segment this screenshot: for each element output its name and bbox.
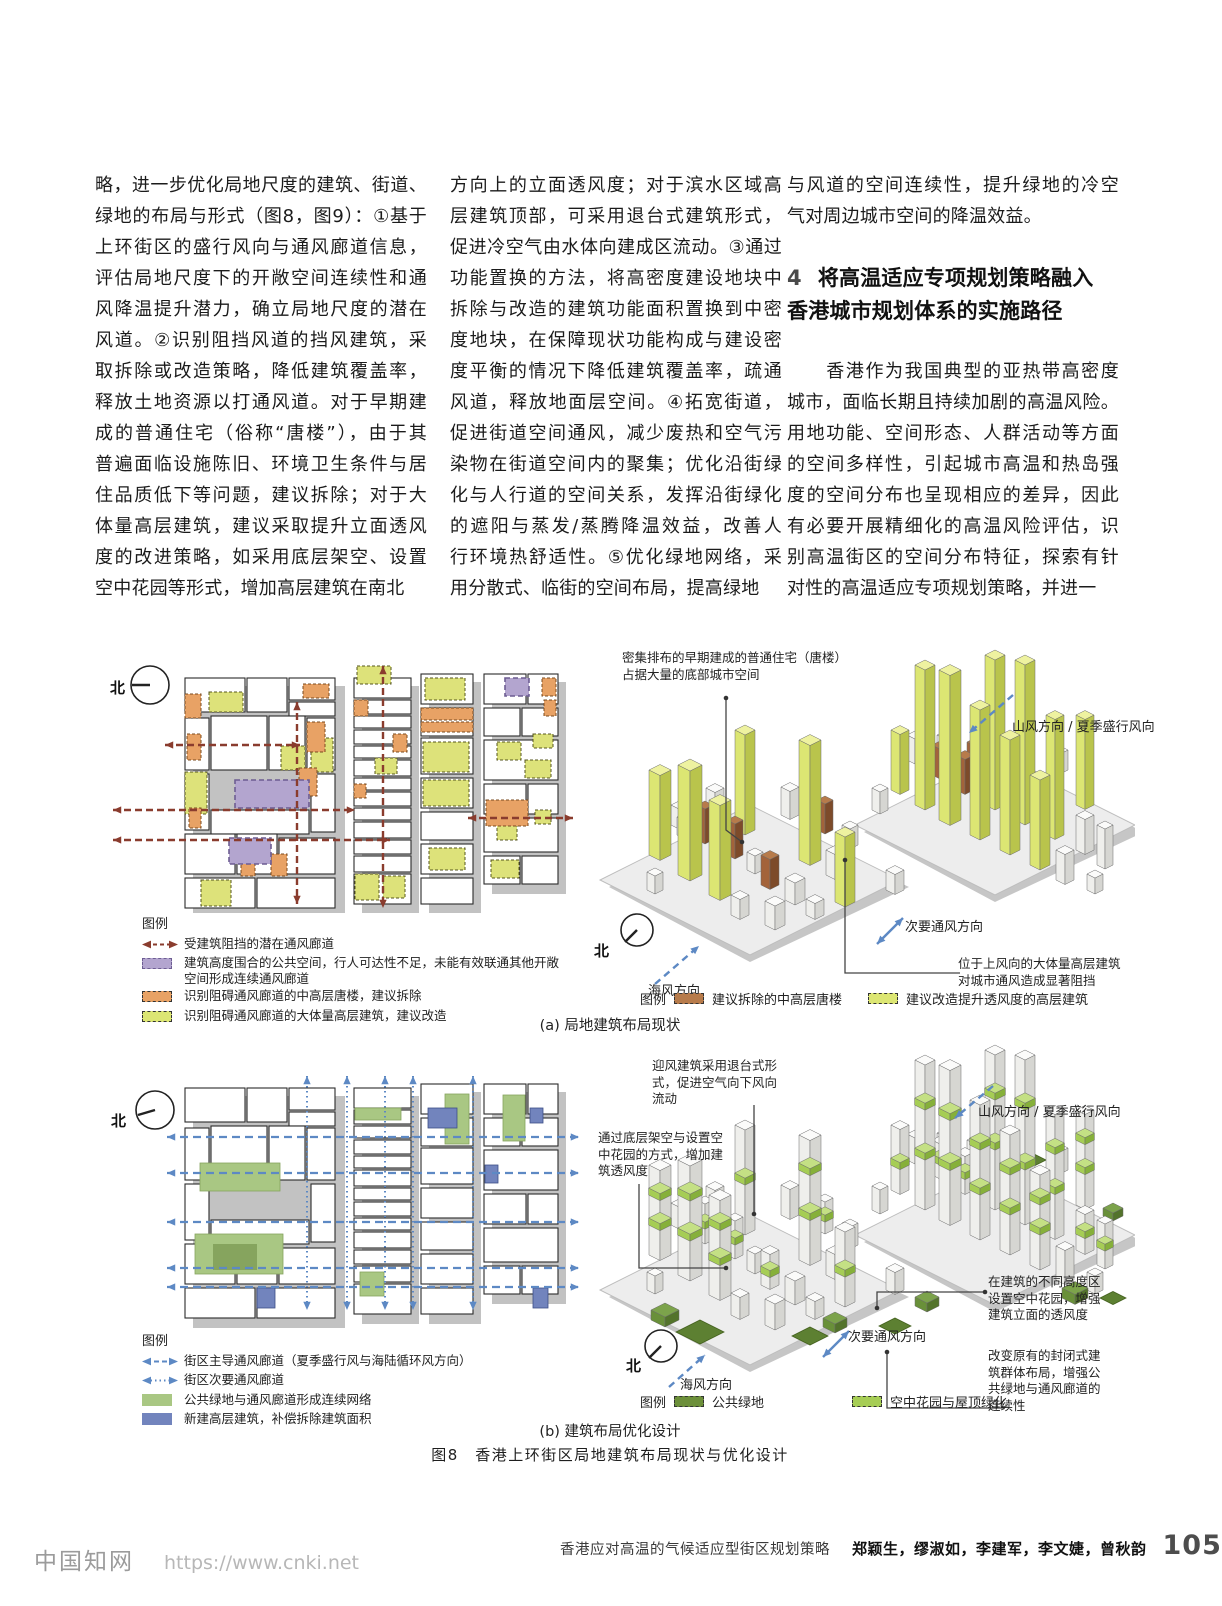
- retrofit-highrise-swatch-icon: [868, 993, 898, 1004]
- legend-label: 街区主导通风廊道（夏季盛行风与海陆循环风方向）: [184, 1353, 472, 1369]
- panel-a-axonometric: [595, 640, 1135, 985]
- text-line: 略，进一步优化局地尺度的建筑、街道、: [95, 170, 427, 201]
- annotation-mountain-wind: 山风方向 / 夏季盛行风向: [978, 1101, 1121, 1120]
- legend-item: 受建筑阻挡的潜在通风廊道: [142, 936, 582, 954]
- text-line: 拆除与改造的建筑功能面积置换到中密: [450, 294, 782, 325]
- text-column-right: 与风道的空间连续性，提升绿地的冷空气对周边城市空间的降温效益。 4将高温适应专项…: [787, 170, 1119, 620]
- text-line: 绿地的布局与形式（图8，图9）：①基于: [95, 201, 427, 232]
- paper-page: 略，进一步优化局地尺度的建筑、街道、绿地的布局与形式（图8，图9）：①基于上环街…: [0, 0, 1222, 1606]
- paragraph: 香港作为我国典型的亚热带高密度城市，面临长期且持续加剧的高温风险。用地功能、空间…: [787, 356, 1119, 604]
- text-line: 的遮阳与蒸发/蒸腾降温效益，改善人: [450, 511, 782, 542]
- north-label: 北: [594, 940, 609, 961]
- text-line: 度地块，在保障现状功能构成与建设密: [450, 325, 782, 356]
- north-label: 北: [110, 677, 125, 698]
- demolish-tanglou-swatch-icon: [674, 993, 704, 1004]
- text-line: 气对周边城市空间的降温效益。: [787, 201, 1119, 232]
- legend-item: 公共绿地与通风廊道形成连续网络: [142, 1392, 582, 1410]
- legend-item: 建筑高度围合的公共空间，行人可达性不足，未能有效联通其他开敞 空间形成连续通风廊…: [142, 955, 582, 986]
- text-line: 对性的高温适应专项规划策略，并进一: [787, 573, 1119, 604]
- text-line: 住品质低下等问题，建议拆除；对于大: [95, 480, 427, 511]
- text-column-left: 略，进一步优化局地尺度的建筑、街道、绿地的布局与形式（图8，图9）：①基于上环街…: [95, 170, 427, 604]
- text-line: 度的空间分布也呈现相应的差异，因此: [787, 480, 1119, 511]
- text-line: 评估局地尺度下的开敞空间连续性和通: [95, 263, 427, 294]
- text-line: 风道，释放地面层空间。④拓宽街道，: [450, 387, 782, 418]
- section-heading-line2: 香港城市规划体系的实施路径: [787, 295, 1119, 328]
- annotation-upwind-block: 位于上风向的大体量高层建筑 对城市通风造成显著阻挡: [958, 956, 1148, 989]
- text-line: 体量高层建筑，建议采取提升立面透风: [95, 511, 427, 542]
- annotation-tanglou: 密集排布的早期建成的普通住宅（唐楼） 占据大量的底部城市空间: [622, 650, 878, 683]
- text-line: 染物在街道空间内的聚集；优化沿街绿: [450, 449, 782, 480]
- legend-label: 建议改造提升透风度的高层建筑: [906, 989, 1088, 1008]
- figure-caption: 图8 香港上环街区局地建筑布局现状与优化设计: [90, 1444, 1130, 1465]
- text-line: 化与人行道的空间关系，发挥沿街绿化: [450, 480, 782, 511]
- paragraph: 与风道的空间连续性，提升绿地的冷空气对周边城市空间的降温效益。: [787, 170, 1119, 232]
- legend-title: 图例: [640, 989, 666, 1008]
- page-footer: 香港应对高温的气候适应型街区规划策略 郑颖生，缪淑如，李建军，李文婕，曾秋韵 1…: [560, 1530, 1222, 1561]
- text-line: 空中花园等形式，增加高层建筑在南北: [95, 573, 427, 604]
- secondary-corridor-arrow-icon: [142, 1372, 184, 1390]
- text-line: 成的普通住宅（俗称“唐楼”），由于其: [95, 418, 427, 449]
- public-green-swatch-icon: [674, 1396, 704, 1407]
- panel-b-caption: (b) 建筑布局优化设计: [90, 1420, 1130, 1441]
- annotation-secondary-wind: 次要通风方向: [848, 1326, 926, 1345]
- text-line: 用分散式、临街的空间布局，提高绿地: [450, 573, 782, 604]
- annotation-sea-wind: 海风方向: [680, 1374, 732, 1393]
- text-line: 方向上的立面透风度；对于滨水区域高: [450, 170, 782, 201]
- legend-item: 街区次要通风廊道: [142, 1372, 582, 1390]
- text-line: 度平衡的情况下降低建筑覆盖率，疏通: [450, 356, 782, 387]
- section-heading: 4将高温适应专项规划策略融入 香港城市规划体系的实施路径: [787, 262, 1119, 328]
- legend-label: 识别阻碍通风廊道的中高层唐楼，建议拆除: [184, 988, 422, 1004]
- legend-title: 图例: [640, 1392, 666, 1411]
- text-line: 别高温街区的空间分布特征，探索有针: [787, 542, 1119, 573]
- annotation-secondary-wind: 次要通风方向: [905, 916, 983, 935]
- text-line: 功能置换的方法，将高密度建设地块中: [450, 263, 782, 294]
- watermark-url: https://www.cnki.net: [164, 1552, 359, 1574]
- legend-title: 图例: [142, 1334, 582, 1350]
- legend-label: 受建筑阻挡的潜在通风廊道: [184, 936, 334, 952]
- text-line: 香港作为我国典型的亚热带高密度: [787, 356, 1119, 387]
- panel-a-axon-legend: 图例 建议拆除的中高层唐楼 建议改造提升透风度的高层建筑: [640, 989, 1088, 1008]
- tanglou-swatch-icon: [142, 988, 184, 1006]
- text-line: 促进街道空间通风，减少废热和空气污: [450, 418, 782, 449]
- text-line: 有必要开展精细化的高温风险评估，识: [787, 511, 1119, 542]
- section-number: 4: [787, 266, 802, 290]
- panel-a-caption: (a) 局地建筑布局现状: [90, 1014, 1130, 1035]
- legend-label: 空中花园与屋顶绿化: [890, 1392, 1007, 1411]
- section-title-part1: 将高温适应专项规划策略融入: [818, 266, 1094, 290]
- text-line: 普遍面临设施陈旧、环境卫生条件与居: [95, 449, 427, 480]
- annotation-setback: 迎风建筑采用退台式形 式，促进空气向下风向 流动: [652, 1058, 812, 1108]
- panel-b-axon-legend: 图例 公共绿地 空中花园与屋顶绿化: [640, 1392, 1007, 1411]
- panel-a-map-legend: 图例 受建筑阻挡的潜在通风廊道 建筑高度围合的公共空间，行人可达性不足，未能有效…: [142, 917, 582, 1025]
- text-line: 的空间多样性，引起城市高温和热岛强: [787, 449, 1119, 480]
- annotation-layout-change: 改变原有的封闭式建 筑群体布局，增强公 共绿地与通风廊道的 连续性: [988, 1348, 1143, 1414]
- panel-b-map-legend: 图例 街区主导通风廊道（夏季盛行风与海陆循环风方向） 街区次要通风廊道 公共绿地…: [142, 1334, 582, 1429]
- text-line: 度的改进策略，如采用底层架空、设置: [95, 542, 427, 573]
- legend-item: 识别阻碍通风廊道的中高层唐楼，建议拆除: [142, 988, 582, 1006]
- text-line: 层建筑顶部，可采用退台式建筑形式，: [450, 201, 782, 232]
- public-space-swatch-icon: [142, 955, 184, 973]
- text-line: 释放土地资源以打通风道。对于早期建: [95, 387, 427, 418]
- legend-label: 建议拆除的中高层唐楼: [712, 989, 842, 1008]
- section-heading-line1: 4将高温适应专项规划策略融入: [787, 262, 1119, 295]
- text-column-middle: 方向上的立面透风度；对于滨水区域高层建筑顶部，可采用退台式建筑形式，促进冷空气由…: [450, 170, 782, 604]
- text-line: 风降温提升潜力，确立局地尺度的潜在: [95, 294, 427, 325]
- north-label: 北: [111, 1110, 126, 1131]
- running-title: 香港应对高温的气候适应型街区规划策略: [560, 1538, 830, 1559]
- cnki-watermark: 中国知网 https://www.cnki.net: [34, 1542, 359, 1576]
- annotation-piloti: 通过底层架空与设置空 中花园的方式，增加建 筑透风度: [598, 1130, 764, 1180]
- text-line: 风道。②识别阻挡风道的挡风建筑，采: [95, 325, 427, 356]
- legend-label: 建筑高度围合的公共空间，行人可达性不足，未能有效联通其他开敞 空间形成连续通风廊…: [184, 955, 559, 986]
- watermark-name: 中国知网: [34, 1542, 134, 1576]
- text-line: 取拆除或改造策略，降低建筑覆盖率，: [95, 356, 427, 387]
- annotation-sky-garden: 在建筑的不同高度区 设置空中花园，增强 建筑立面的透风度: [988, 1274, 1138, 1324]
- green-network-swatch-icon: [142, 1392, 184, 1410]
- blocked-corridor-arrow-icon: [142, 936, 184, 954]
- authors: 郑颖生，缪淑如，李建军，李文婕，曾秋韵: [852, 1538, 1147, 1559]
- text-line: 城市，面临长期且持续加剧的高温风险。: [787, 387, 1119, 418]
- panel-a-plan-map: [105, 638, 585, 913]
- legend-label: 公共绿地与通风廊道形成连续网络: [184, 1392, 372, 1408]
- text-line: 用地功能、空间形态、人群活动等方面: [787, 418, 1119, 449]
- page-number: 105: [1163, 1530, 1222, 1561]
- legend-item: 街区主导通风廊道（夏季盛行风与海陆循环风方向）: [142, 1353, 582, 1371]
- text-line: 行环境热舒适性。⑤优化绿地网络，采: [450, 542, 782, 573]
- main-corridor-arrow-icon: [142, 1353, 184, 1371]
- legend-label: 公共绿地: [712, 1392, 764, 1411]
- legend-label: 街区次要通风廊道: [184, 1372, 284, 1388]
- text-line: 上环街区的盛行风向与通风廊道信息，: [95, 232, 427, 263]
- sky-garden-swatch-icon: [852, 1396, 882, 1407]
- annotation-mountain-wind: 山风方向 / 夏季盛行风向: [1012, 716, 1155, 735]
- panel-b-plan-map: [105, 1048, 585, 1338]
- legend-title: 图例: [142, 917, 582, 933]
- text-line: 与风道的空间连续性，提升绿地的冷空: [787, 170, 1119, 201]
- text-line: 促进冷空气由水体向建成区流动。③通过: [450, 232, 782, 263]
- north-label: 北: [626, 1355, 641, 1376]
